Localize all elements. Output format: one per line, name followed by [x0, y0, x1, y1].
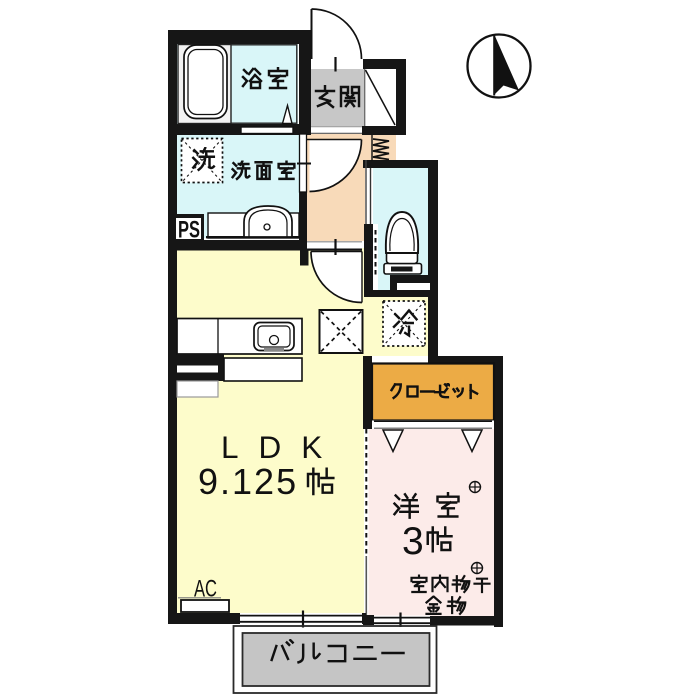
svg-text:3: 3: [402, 520, 424, 563]
svg-text:PS: PS: [178, 217, 200, 244]
svg-text:LDK: LDK: [221, 429, 342, 465]
svg-text:9.125: 9.125: [198, 461, 298, 502]
svg-text:AC: AC: [194, 576, 217, 603]
